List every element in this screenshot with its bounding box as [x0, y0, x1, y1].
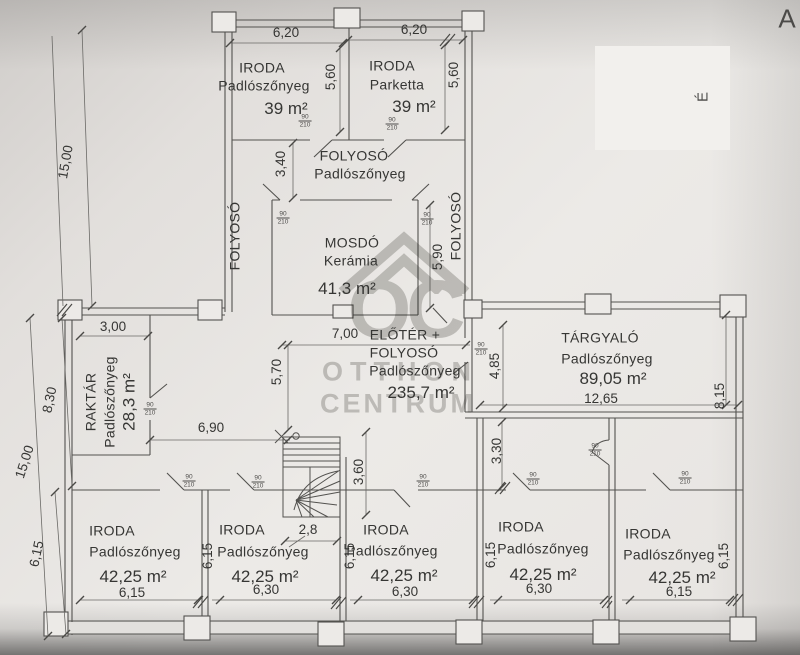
room-iroda-s1-name: IRODA	[89, 524, 135, 539]
room-raktar-name: RAKTÁR	[82, 356, 101, 448]
room-iroda-s3-area: 42,25 m²	[370, 567, 437, 585]
dim-s1-width: 6,15	[119, 586, 145, 600]
room-iroda-s2-name: IRODA	[219, 523, 265, 538]
room-raktar-area: 28,3 m²	[120, 356, 139, 448]
room-iroda-ne-area: 39 m²	[392, 98, 435, 116]
dim-targyalo-left-height: 4,85	[488, 353, 502, 379]
room-raktar-finish: Padlószőnyeg	[101, 356, 120, 448]
dim-targyalo-width: 12,65	[584, 392, 618, 406]
door-size-label: 90210	[417, 474, 430, 489]
dim-mosdo-height: 5,90	[431, 244, 445, 270]
room-folyoso-right-name: FOLYOSÓ	[449, 192, 464, 261]
door-size-label: 90210	[421, 212, 434, 227]
door-size-label: 90210	[299, 114, 312, 129]
dim-s3-width: 6,30	[392, 585, 418, 599]
dim-mid-width: 6,90	[198, 421, 224, 435]
dim-iroda-nw-height: 5,60	[324, 64, 338, 90]
dim-eloter-width: 7,00	[332, 327, 358, 341]
room-iroda-ne-finish: Parketta	[370, 78, 425, 93]
dim-top-left-width: 6,20	[273, 26, 299, 40]
door-size-label: 90210	[144, 402, 157, 417]
room-mosdo-name: MOSDÓ	[325, 236, 379, 251]
room-folyoso-top-finish: Padlószőnyeg	[314, 167, 406, 182]
door-size-label: 90210	[527, 472, 540, 487]
room-raktar-label: RAKTÁR Padlószőnyeg 28,3 m²	[82, 356, 139, 448]
dim-folyoso-height: 3,40	[274, 151, 288, 177]
dim-s4-width: 6,30	[526, 582, 552, 596]
door-size-label: 90210	[277, 211, 290, 226]
dim-stair-width: 2,8	[299, 523, 318, 537]
dim-eloter-height: 5,70	[270, 359, 284, 385]
dim-hall-height: 3,30	[490, 438, 504, 464]
dim-s5-width: 6,15	[666, 585, 692, 599]
room-iroda-s5-finish: Padlószőnyeg	[623, 548, 715, 563]
dim-row-height-4: 6,15	[717, 543, 731, 569]
compass-north-label: É	[695, 92, 712, 102]
dim-stair-height: 3,60	[352, 459, 366, 485]
room-targyalo-finish: Padlószőnyeg	[561, 352, 653, 367]
door-size-label: 90210	[183, 474, 196, 489]
dim-row-height-1: 6,15	[201, 543, 215, 569]
door-size-label: 90210	[475, 342, 488, 357]
room-iroda-nw-name: IRODA	[239, 61, 285, 76]
room-iroda-s3-finish: Padlószőnyeg	[346, 544, 438, 559]
room-iroda-s4-finish: Padlószőnyeg	[497, 542, 589, 557]
room-iroda-s5-name: IRODA	[625, 527, 671, 542]
dim-iroda-ne-height: 5,60	[447, 62, 461, 88]
room-mosdo-finish: Kerámia	[324, 254, 378, 269]
room-iroda-s3-name: IRODA	[363, 523, 409, 538]
dim-top-right-width: 6,20	[401, 23, 427, 37]
room-iroda-s1-area: 42,25 m²	[99, 568, 166, 586]
room-folyoso-left-name: FOLYOSÓ	[228, 202, 243, 271]
dim-s2-width: 6,30	[253, 583, 279, 597]
dim-targyalo-right-height: 8,15	[713, 383, 727, 409]
room-iroda-s1-finish: Padlószőnyeg	[89, 545, 181, 560]
door-size-label: 90210	[589, 443, 602, 458]
door-size-label: 90210	[386, 117, 399, 132]
bottom-wall-band	[58, 622, 745, 634]
room-mosdo-area: 41,3 m²	[318, 280, 376, 298]
dim-raktar-width: 3,00	[100, 320, 126, 334]
room-eloter-finish: Padlószőnyeg	[369, 364, 461, 379]
room-iroda-nw-finish: Padlószőnyeg	[218, 79, 310, 94]
sheet-corner-letter: A	[778, 4, 795, 35]
floorplan-photo: OC OTTHON CENTRUM É A IRODA Padlószőnyeg…	[0, 0, 800, 655]
room-targyalo-area: 89,05 m²	[579, 370, 646, 388]
door-size-label: 90210	[252, 475, 265, 490]
door-size-label: 90210	[679, 471, 692, 486]
room-iroda-s4-name: IRODA	[498, 520, 544, 535]
room-iroda-s2-finish: Padlószőnyeg	[217, 545, 309, 560]
dim-row-height-2: 6,15	[343, 543, 357, 569]
room-eloter-name2: FOLYOSÓ	[370, 346, 439, 361]
room-folyoso-top-name: FOLYOSÓ	[320, 149, 389, 164]
room-eloter-area: 235,7 m²	[387, 384, 454, 402]
dim-row-height-3: 6,15	[484, 542, 498, 568]
room-iroda-ne-name: IRODA	[369, 59, 415, 74]
room-eloter-name1: ELŐTÉR +	[370, 328, 440, 343]
room-targyalo-name: TÁRGYALÓ	[561, 331, 639, 346]
